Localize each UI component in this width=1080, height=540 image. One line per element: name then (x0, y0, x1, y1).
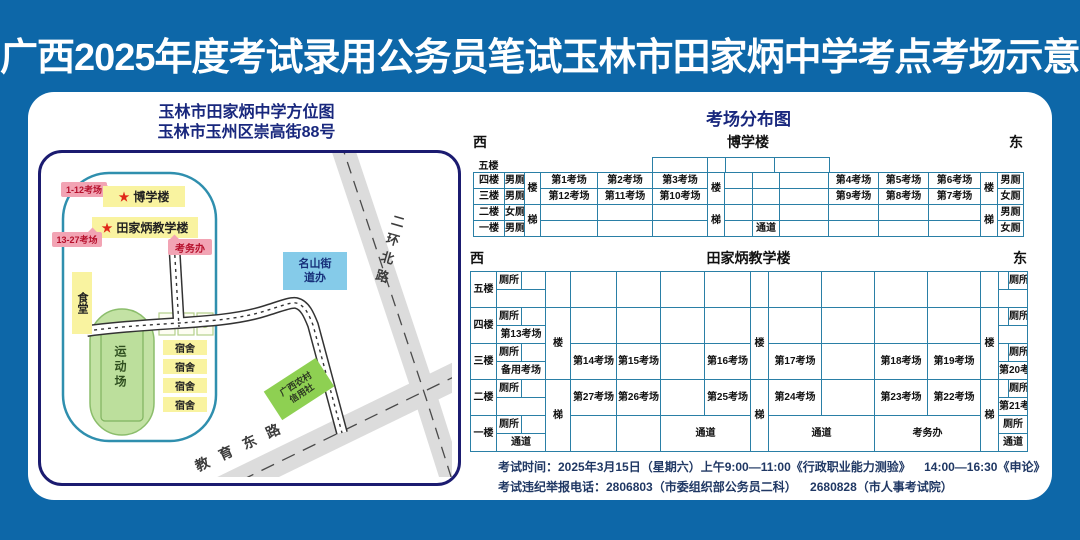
empty-cell (522, 344, 546, 362)
toilet-cell: 男厕 (505, 189, 525, 205)
exam-time-line: 考试时间：2025年3月15日（星期六）上午9:00—11:00《行政职业能力测… (498, 458, 1058, 475)
room-cell: 第25考场 (705, 380, 751, 416)
tjb-name: 田家炳教学楼 (707, 248, 791, 268)
dorm-label-2: 宿舍 (163, 359, 207, 374)
empty-cell (879, 205, 929, 221)
toilet-cell: 厕所 (497, 272, 522, 290)
floor-label-cell: 三楼 (474, 189, 505, 205)
tianjiabing-building-label: ★ 田家炳教学楼 (92, 217, 198, 238)
empty-cell (725, 205, 753, 221)
room-cell: 第11考场 (598, 189, 653, 205)
empty-cell (541, 221, 598, 237)
empty-cell (774, 158, 829, 173)
floor-label-cell: 一楼 (471, 416, 497, 452)
room-cell: 第8考场 (879, 189, 929, 205)
corridor-cell: 通道 (497, 434, 546, 452)
stair-cell: 梯 (981, 205, 998, 237)
room-cell: 第12考场 (541, 189, 598, 205)
dorm-label-3: 宿舍 (163, 378, 207, 393)
stair-cell: 梯 (981, 380, 999, 452)
room-cell: 第1考场 (541, 173, 598, 189)
empty-cell (829, 205, 879, 221)
map-heading-line2: 玉林市玉州区崇高街88号 (38, 123, 455, 143)
room-cell: 第13考场 (497, 326, 546, 344)
empty-cell (661, 380, 705, 416)
empty-cell (769, 272, 822, 308)
boxue-floor5-annex (652, 157, 830, 173)
empty-cell (598, 205, 653, 221)
empty-cell (822, 308, 875, 344)
room-cell: 第20考场 (999, 362, 1028, 380)
room-cell: 第6考场 (929, 173, 981, 189)
empty-cell (705, 272, 751, 308)
tjb-table: 五楼 厕所 厕所 (470, 271, 1028, 452)
room-cell: 第21考场 (999, 398, 1028, 416)
empty-cell (571, 416, 617, 452)
empty-cell (929, 221, 981, 237)
empty-cell (541, 205, 598, 221)
corridor-cell: 通道 (999, 434, 1028, 452)
room-cell: 第27考场 (571, 380, 617, 416)
distribution-heading: 考场分布图 (470, 105, 1027, 130)
room-cell: 第3考场 (653, 173, 708, 189)
empty-cell (780, 205, 829, 221)
empty-cell (999, 326, 1028, 344)
floor-label-cell: 二楼 (474, 205, 505, 221)
empty-cell (617, 308, 661, 344)
empty-cell (598, 221, 653, 237)
room-cell: 第15考场 (617, 344, 661, 380)
empty-cell (780, 221, 829, 237)
room-cell: 第24考场 (769, 380, 822, 416)
street-office-label: 名山街 道办 (283, 252, 347, 290)
empty-cell (999, 308, 1009, 326)
room-cell: 第9考场 (829, 189, 879, 205)
empty-cell (661, 344, 705, 380)
empty-cell (875, 308, 928, 344)
floor-label-cell: 三楼 (471, 344, 497, 380)
room-cell: 第16考场 (705, 344, 751, 380)
map-heading-line1: 玉林市田家炳中学方位图 (38, 103, 455, 123)
empty-cell (999, 272, 1009, 290)
toilet-cell: 男厕 (505, 173, 525, 189)
room-cell: 第5考场 (879, 173, 929, 189)
room-cell: 备用考场 (497, 362, 546, 380)
campus-map-inner: 1-12考场 ★ 博学楼 ★ 田家炳教学楼 13-27考场 考务办 食堂 运动场… (41, 153, 458, 483)
office-cell: 考务办 (875, 416, 981, 452)
room-cell: 第4考场 (829, 173, 879, 189)
empty-cell (879, 221, 929, 237)
empty-cell (661, 308, 705, 344)
toilet-cell: 厕所 (497, 344, 522, 362)
empty-cell (497, 398, 546, 416)
empty-cell (617, 416, 661, 452)
badge-rooms-13-27: 13-27考场 (52, 232, 102, 247)
room-cell: 第7考场 (929, 189, 981, 205)
toilet-cell: 厕所 (1009, 308, 1028, 326)
boxue-building-label: ★ 博学楼 (103, 186, 185, 207)
stair-cell: 楼 (546, 308, 571, 380)
empty-cell (875, 272, 928, 308)
boxue-header: 西 博学楼 东 (473, 132, 1023, 152)
floor-label-cell: 一楼 (474, 221, 505, 237)
corridor-cell: 通道 (661, 416, 751, 452)
stair-cell: 楼 (981, 173, 998, 205)
room-cell: 第22考场 (928, 380, 981, 416)
street-office-line1: 名山街 (299, 257, 332, 271)
toilet-cell: 厕所 (497, 308, 522, 326)
east-label: 东 (1013, 248, 1027, 268)
boxue-table: 四楼 男厕 楼 第1考场 第2考场 第3考场 楼 第4考场 第5考场 第6考场 … (473, 172, 1024, 237)
corridor-cell: 通道 (753, 221, 780, 237)
stair-cell: 梯 (751, 380, 769, 452)
toilet-cell: 男厕 (998, 173, 1024, 189)
west-label: 西 (473, 132, 487, 152)
empty-cell (725, 158, 774, 173)
empty-cell (497, 290, 546, 308)
floor-label-cell: 五楼 (471, 272, 497, 308)
boxue-building-text: 博学楼 (133, 188, 169, 205)
empty-cell (753, 205, 780, 221)
toilet-cell: 女厕 (505, 205, 525, 221)
empty-cell (571, 308, 617, 344)
empty-cell (522, 308, 546, 326)
stair-cell (751, 272, 769, 308)
empty-cell (617, 272, 661, 308)
empty-cell (929, 205, 981, 221)
corridor-cell: 通道 (769, 416, 875, 452)
room-cell: 第17考场 (769, 344, 822, 380)
star-icon: ★ (119, 190, 130, 204)
east-label: 东 (1009, 132, 1023, 152)
toilet-cell: 男厕 (505, 221, 525, 237)
room-cell: 第23考场 (875, 380, 928, 416)
empty-cell (769, 308, 822, 344)
toilet-cell: 厕所 (1009, 272, 1028, 290)
toilet-cell: 男厕 (998, 205, 1024, 221)
dorm-label-4: 宿舍 (163, 397, 207, 412)
empty-cell (780, 173, 829, 189)
empty-cell (780, 189, 829, 205)
empty-cell (753, 173, 780, 189)
room-cell: 第14考场 (571, 344, 617, 380)
empty-cell (661, 272, 705, 308)
empty-cell (653, 221, 708, 237)
room-cell: 第19考场 (928, 344, 981, 380)
empty-cell (571, 272, 617, 308)
empty-cell (928, 272, 981, 308)
canteen-label: 食堂 (72, 272, 92, 334)
empty-cell (705, 308, 751, 344)
stair-cell: 梯 (525, 205, 541, 237)
empty-cell (653, 158, 707, 173)
empty-cell (707, 158, 725, 173)
empty-cell (725, 173, 753, 189)
toilet-cell: 女厕 (998, 189, 1024, 205)
toilet-cell: 厕所 (497, 380, 522, 398)
toilet-cell: 厕所 (497, 416, 522, 434)
badge-rooms-1-12: 1-12考场 (61, 182, 107, 197)
floor-label-cell: 二楼 (471, 380, 497, 416)
empty-cell (822, 272, 875, 308)
poster: 广西2025年度考试录用公务员笔试玉林市田家炳中学考点考场示意图 玉林市田家炳中… (0, 0, 1080, 540)
sports-field-label: 运动场 (112, 345, 129, 390)
empty-cell (928, 308, 981, 344)
room-cell: 第26考场 (617, 380, 661, 416)
empty-cell (822, 380, 875, 416)
empty-cell (822, 344, 875, 380)
empty-cell (725, 189, 753, 205)
stair-cell: 楼 (708, 173, 725, 205)
toilet-cell: 厕所 (1009, 344, 1028, 362)
map-heading: 玉林市田家炳中学方位图 玉林市玉州区崇高街88号 (38, 103, 455, 143)
stair-cell: 梯 (546, 380, 571, 452)
stair-cell: 楼 (525, 173, 541, 205)
street-office-line2: 道办 (304, 271, 326, 285)
star-icon: ★ (102, 221, 113, 235)
empty-cell (753, 189, 780, 205)
empty-cell (829, 221, 879, 237)
dorm-label-1: 宿舍 (163, 340, 207, 355)
toilet-cell: 厕所 (999, 416, 1028, 434)
campus-map: 1-12考场 ★ 博学楼 ★ 田家炳教学楼 13-27考场 考务办 食堂 运动场… (38, 150, 461, 486)
room-cell: 第2考场 (598, 173, 653, 189)
tjb-header: 西 田家炳教学楼 东 (470, 248, 1027, 268)
empty-cell (522, 272, 546, 290)
tianjiabing-building-text: 田家炳教学楼 (116, 219, 188, 236)
stair-cell: 楼 (751, 308, 769, 380)
poster-title: 广西2025年度考试录用公务员笔试玉林市田家炳中学考点考场示意图 (0, 26, 1080, 81)
boxue-name: 博学楼 (727, 132, 769, 152)
empty-cell (522, 416, 546, 434)
room-cell: 第10考场 (653, 189, 708, 205)
empty-cell (653, 205, 708, 221)
empty-cell (999, 344, 1009, 362)
empty-cell (725, 221, 753, 237)
west-label: 西 (470, 248, 484, 268)
toilet-cell: 厕所 (1009, 380, 1028, 398)
boxue-floor5-label: 五楼 (473, 157, 504, 172)
toilet-cell: 女厕 (998, 221, 1024, 237)
empty-cell (999, 290, 1028, 308)
exam-office-map-label: 考务办 (168, 239, 212, 255)
content-panel: 玉林市田家炳中学方位图 玉林市玉州区崇高街88号 (28, 92, 1052, 500)
stair-cell (981, 272, 999, 308)
stair-cell: 梯 (708, 205, 725, 237)
empty-cell (999, 380, 1009, 398)
stair-cell (546, 272, 571, 308)
report-phone-line: 考试违纪举报电话：2806803（市委组织部公务员二科） 2680828（市人事… (498, 478, 1058, 495)
stair-cell: 楼 (981, 308, 999, 380)
empty-cell (522, 380, 546, 398)
room-cell: 第18考场 (875, 344, 928, 380)
floor-label-cell: 四楼 (474, 173, 505, 189)
floor-label-cell: 四楼 (471, 308, 497, 344)
